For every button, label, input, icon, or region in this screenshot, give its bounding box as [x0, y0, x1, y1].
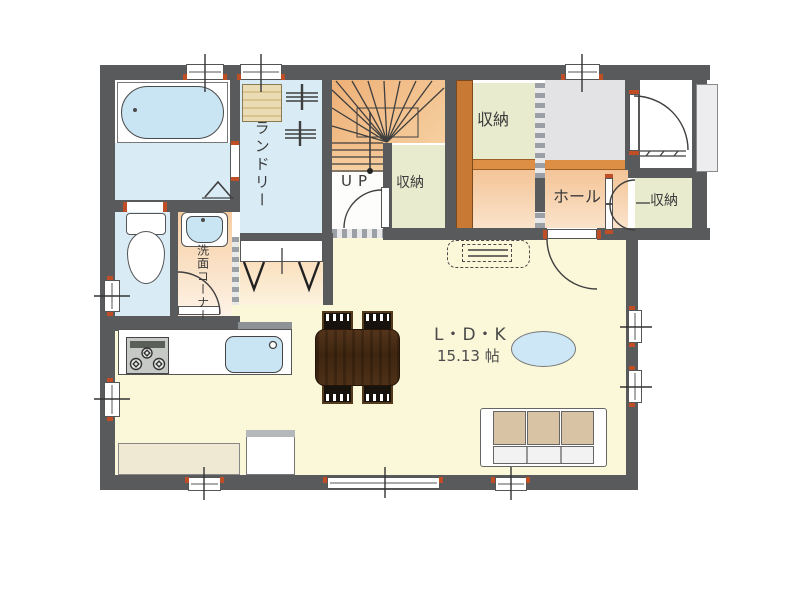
wall: [628, 168, 692, 178]
dashed-furniture-inner: [462, 244, 512, 262]
window-right-2: [628, 370, 642, 403]
wood-accent-wall: [456, 80, 473, 233]
laundry-shelf: [242, 84, 282, 122]
dining-table: [315, 329, 400, 386]
closet-entry-label: 収納: [650, 194, 678, 209]
floor-plan: ランドリー 洗面コーナー UP 収納 収納 収納 ホール L・D・K 15.13…: [0, 0, 800, 600]
wall: [170, 212, 178, 316]
tv-board: [118, 443, 240, 475]
wall: [535, 178, 545, 212]
wall: [597, 228, 710, 240]
hall-label: ホール: [553, 189, 601, 206]
door-ldk: [547, 229, 597, 239]
door-closet-entry-a: [605, 178, 613, 204]
washbasin-bowl: [186, 216, 223, 243]
washroom-label: 洗面コーナー: [196, 244, 209, 322]
wall: [323, 233, 333, 305]
toilet-door-opening: [127, 202, 163, 212]
open-boundary-washroom: [232, 237, 239, 305]
entrance-floor: [640, 80, 692, 170]
window-right-1: [628, 310, 642, 343]
wall: [383, 228, 547, 240]
sofa-cushion: [561, 411, 594, 445]
room-bathroom: [115, 143, 230, 201]
rug: [511, 331, 576, 367]
closet-upper-label: 収納: [477, 112, 509, 129]
entrance-porch: [696, 84, 718, 172]
stairs-up-label: UP: [341, 174, 373, 190]
sofa-cushion: [493, 411, 526, 445]
window-ldk-left: [104, 382, 120, 417]
wall: [322, 80, 332, 233]
door-entrance: [629, 94, 639, 151]
window-bathroom: [186, 64, 224, 80]
door-stairhall: [381, 187, 390, 228]
window-toilet: [104, 280, 120, 312]
closet-step-strip: [473, 159, 628, 170]
ldk-name-label: L・D・K: [434, 327, 507, 345]
sofa-cushion: [527, 411, 560, 445]
window-bottom-wide: [327, 477, 440, 489]
closet-by-stairs-label: 収納: [396, 176, 424, 191]
window-genkan: [565, 64, 600, 80]
door-closet-entry-b: [605, 204, 613, 230]
genkan-tile: [545, 80, 625, 160]
wall: [626, 238, 638, 490]
stove-grill: [130, 341, 165, 348]
kitchen-sink: [225, 336, 283, 373]
cabinet-top: [246, 430, 295, 437]
sofa-seat: [493, 446, 594, 464]
bathroom-door-opening: [231, 145, 239, 177]
stairs-upper: [332, 80, 445, 143]
ldk-size-label: 15.13 帖: [437, 349, 500, 365]
window-bottom-2: [495, 477, 527, 491]
bathtub: [121, 86, 224, 139]
laundry-label: ランドリー: [253, 120, 269, 210]
window-laundry: [240, 64, 282, 80]
desk-nook-counter: [240, 240, 323, 262]
open-boundary-stairhall: [332, 229, 383, 238]
window-bottom-1: [188, 477, 221, 491]
stairs-lower: [332, 143, 383, 172]
wall: [445, 80, 456, 233]
